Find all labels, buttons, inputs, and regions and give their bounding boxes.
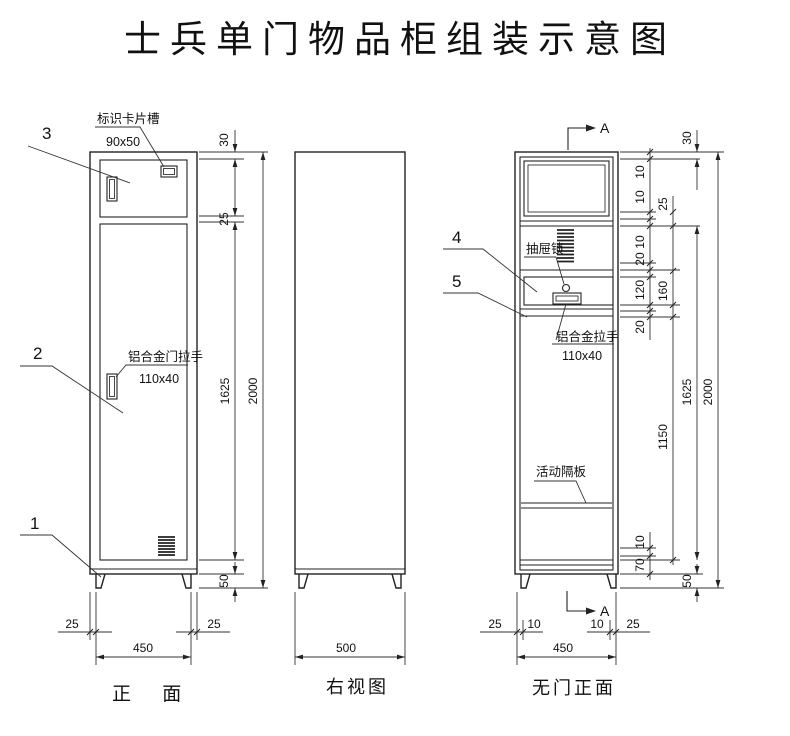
main-door-panel bbox=[100, 224, 187, 560]
leader-part-1 bbox=[20, 535, 101, 577]
dim-front-leg-height: 50 bbox=[217, 574, 231, 588]
side-right-leg bbox=[392, 574, 401, 588]
top-door-handle bbox=[107, 177, 117, 201]
dim-open-right-inset: 25 bbox=[626, 617, 640, 631]
section-arrow-top bbox=[586, 125, 596, 132]
side-left-leg bbox=[299, 574, 308, 588]
dim-front-door-gap: 25 bbox=[217, 212, 231, 226]
cabinet-body-open bbox=[515, 152, 618, 574]
section-arrow-bottom bbox=[586, 608, 596, 615]
open-view-caption: 无门正面 bbox=[532, 678, 616, 698]
dim-open-base-width: 450 bbox=[553, 641, 573, 655]
section-mark-bottom bbox=[567, 591, 586, 611]
top-compartment-box bbox=[524, 161, 609, 216]
side-view-caption: 右视图 bbox=[326, 677, 389, 697]
card-slot-label: 标识卡片槽 bbox=[97, 112, 160, 126]
dim-open-10a: 10 bbox=[633, 165, 647, 179]
upper-rail bbox=[520, 221, 613, 226]
dim-open-total-height: 2000 bbox=[701, 378, 715, 405]
part-label-4: 4 bbox=[452, 228, 461, 247]
side-view: 500 右视图 bbox=[295, 152, 405, 697]
leader-shelf bbox=[534, 481, 586, 503]
dim-open-25: 25 bbox=[656, 197, 670, 211]
drawer-handle-label: 铝合金拉手 bbox=[556, 329, 619, 344]
dim-open-20b: 20 bbox=[633, 320, 647, 334]
movable-shelf bbox=[521, 503, 612, 508]
dim-front-total-height: 2000 bbox=[246, 377, 260, 404]
open-view: 抽屉锁 铝合金拉手 110x40 活动隔板 4 5 A A bbox=[443, 120, 724, 698]
dim-front-left-inset: 25 bbox=[65, 617, 79, 631]
dim-open-r10: 10 bbox=[590, 617, 604, 631]
main-door-handle bbox=[107, 374, 117, 399]
dim-open-10c: 10 bbox=[633, 235, 647, 249]
dim-front-door-height: 1625 bbox=[218, 377, 232, 404]
door-handle-label: 铝合金门拉手 bbox=[128, 349, 203, 364]
dim-open-120: 120 bbox=[633, 280, 647, 300]
dim-open-20a: 20 bbox=[633, 252, 647, 266]
card-slot-inner bbox=[164, 169, 175, 175]
dim-front-base-width: 450 bbox=[133, 641, 153, 655]
vent-grille-front bbox=[158, 537, 175, 555]
lower-rail bbox=[520, 309, 613, 316]
dim-open-door-height: 1625 bbox=[680, 378, 694, 405]
dim-open-b70: 70 bbox=[633, 558, 647, 572]
page-title: 士兵单门物品柜组装示意图 bbox=[124, 19, 676, 60]
dim-open-b10: 10 bbox=[633, 535, 647, 549]
drawing-canvas: 士兵单门物品柜组装示意图 3 2 1 标识卡片槽 90x50 铝合金门拉手 11… bbox=[0, 0, 790, 736]
drawer-handle-inner bbox=[556, 296, 578, 301]
dim-open-top-inset: 30 bbox=[680, 131, 694, 145]
dim-front-top-inset: 30 bbox=[217, 133, 231, 147]
door-handle-size: 110x40 bbox=[139, 372, 179, 386]
part-label-5: 5 bbox=[452, 272, 461, 291]
section-letter-top: A bbox=[600, 120, 610, 136]
drawer-lock-cylinder bbox=[563, 285, 570, 292]
front-extension-lines bbox=[199, 152, 268, 588]
top-door-handle-inner bbox=[110, 180, 115, 199]
drawer-handle bbox=[553, 293, 581, 304]
drawer-lock-label: 抽屉锁 bbox=[526, 241, 564, 256]
open-right-leg bbox=[607, 574, 616, 588]
dim-open-10b: 10 bbox=[633, 190, 647, 204]
dim-open-left-inset: 25 bbox=[488, 617, 502, 631]
shelf-label: 活动隔板 bbox=[536, 465, 587, 479]
dim-open-l10: 10 bbox=[527, 617, 541, 631]
part-label-1: 1 bbox=[30, 514, 39, 533]
drawer-handle-size: 110x40 bbox=[562, 349, 602, 363]
top-compartment-inner bbox=[528, 165, 605, 212]
front-right-leg bbox=[182, 574, 191, 588]
front-view: 3 2 1 标识卡片槽 90x50 铝合金门拉手 110x40 30 25 16… bbox=[20, 112, 268, 705]
main-door-handle-inner bbox=[110, 377, 115, 397]
open-extension-lines bbox=[620, 152, 724, 588]
dim-open-160: 160 bbox=[656, 281, 670, 301]
cabinet-body-side bbox=[295, 152, 405, 574]
front-view-caption: 正 面 bbox=[112, 684, 194, 705]
dim-open-leg-height: 50 bbox=[680, 574, 694, 588]
section-mark-top bbox=[568, 128, 586, 150]
assembly-drawing-page: 士兵单门物品柜组装示意图 3 2 1 标识卡片槽 90x50 铝合金门拉手 11… bbox=[0, 0, 790, 736]
dim-open-1150: 1150 bbox=[656, 424, 670, 450]
bottom-floor bbox=[520, 560, 613, 565]
open-left-leg bbox=[521, 574, 530, 588]
leader-part-2 bbox=[20, 366, 123, 413]
dim-side-depth: 500 bbox=[336, 641, 356, 655]
card-slot-size: 90x50 bbox=[106, 135, 140, 149]
dim-front-right-inset: 25 bbox=[207, 617, 221, 631]
part-label-2: 2 bbox=[33, 344, 42, 363]
part-label-3: 3 bbox=[42, 124, 51, 143]
